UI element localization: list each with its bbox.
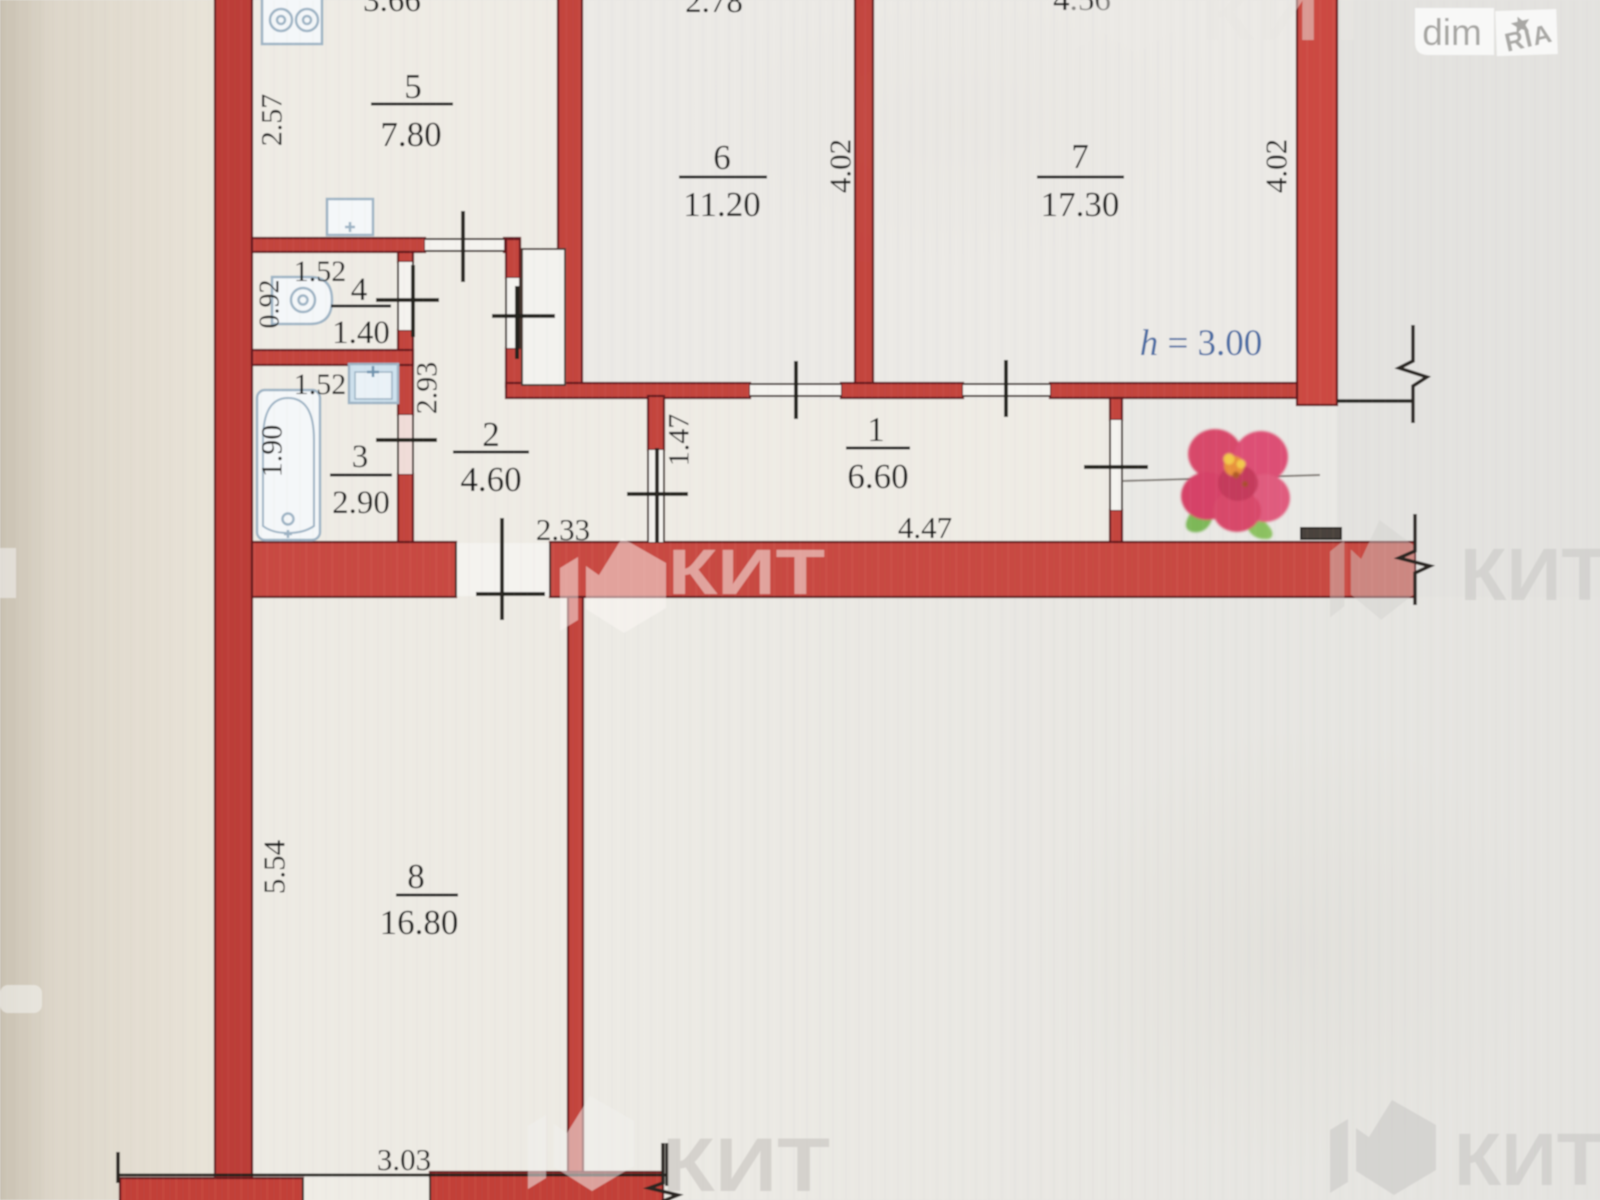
svg-text:КИТ: КИТ [1454,1118,1600,1200]
svg-text:КИТ: КИТ [662,1123,830,1200]
svg-text:dim: dim [1422,12,1482,53]
svg-text:КИТ: КИТ [668,536,825,608]
svg-text:КИТ: КИТ [1200,0,1375,56]
svg-text:КИТ: КИТ [1460,533,1600,616]
